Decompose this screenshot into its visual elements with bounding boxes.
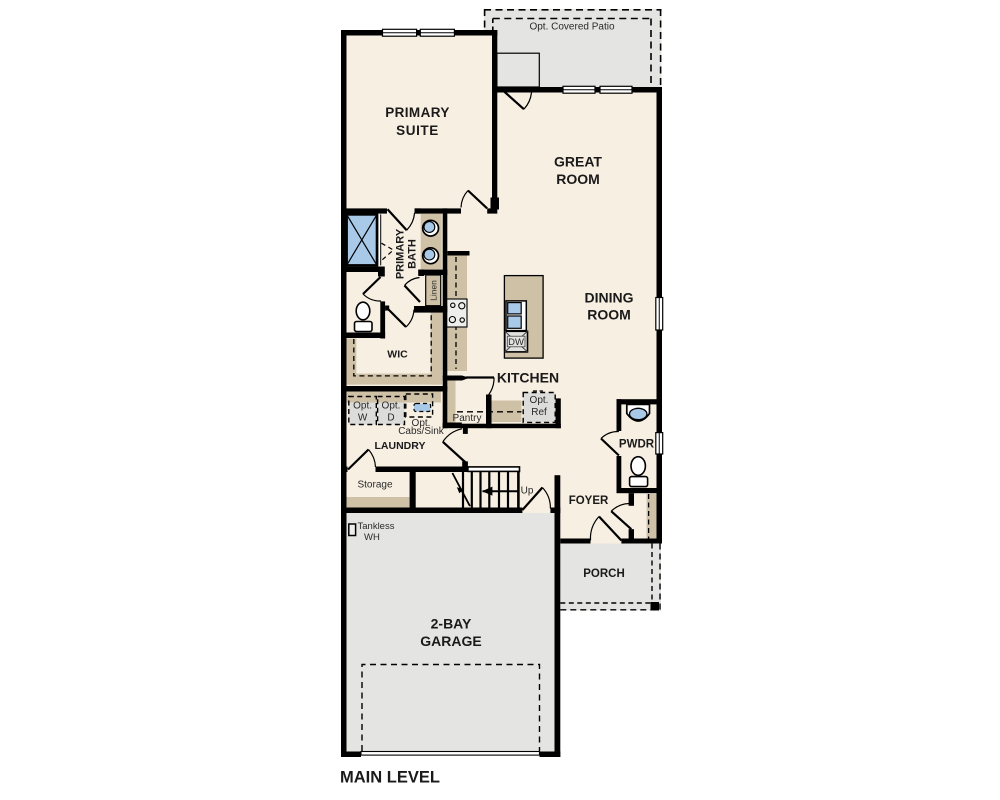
svg-text:D: D xyxy=(387,413,394,424)
svg-text:WH: WH xyxy=(364,532,380,543)
svg-text:DINING: DINING xyxy=(585,290,634,306)
svg-text:SUITE: SUITE xyxy=(396,123,439,138)
svg-text:WIC: WIC xyxy=(387,349,408,361)
svg-text:ROOM: ROOM xyxy=(556,171,600,187)
svg-text:Opt.: Opt. xyxy=(530,395,549,406)
svg-text:Storage: Storage xyxy=(357,480,392,491)
svg-text:DW: DW xyxy=(508,337,524,348)
svg-text:ROOM: ROOM xyxy=(587,307,631,323)
svg-text:Linen: Linen xyxy=(429,280,439,301)
svg-text:MAIN LEVEL: MAIN LEVEL xyxy=(340,769,440,787)
svg-text:Ref: Ref xyxy=(531,407,547,418)
svg-text:KITCHEN: KITCHEN xyxy=(497,370,559,386)
svg-text:BATH: BATH xyxy=(407,239,419,269)
svg-text:Pantry: Pantry xyxy=(453,413,482,424)
svg-text:FOYER: FOYER xyxy=(569,495,609,507)
svg-text:PWDR: PWDR xyxy=(619,439,655,451)
svg-text:LAUNDRY: LAUNDRY xyxy=(375,440,426,452)
svg-text:Opt. Covered Patio: Opt. Covered Patio xyxy=(529,22,614,33)
svg-text:W: W xyxy=(358,413,368,424)
svg-text:Opt.: Opt. xyxy=(382,401,401,412)
svg-text:GARAGE: GARAGE xyxy=(420,633,481,649)
svg-text:PRIMARY: PRIMARY xyxy=(385,105,450,120)
svg-text:GREAT: GREAT xyxy=(554,154,602,170)
svg-text:Tankless: Tankless xyxy=(358,521,395,532)
svg-text:PRIMARY: PRIMARY xyxy=(395,228,407,279)
svg-text:Up: Up xyxy=(521,486,534,497)
svg-text:Opt.: Opt. xyxy=(353,401,372,412)
svg-text:PORCH: PORCH xyxy=(583,568,625,580)
svg-text:Cabs/Sink: Cabs/Sink xyxy=(398,426,445,437)
svg-text:2-BAY: 2-BAY xyxy=(431,616,472,632)
